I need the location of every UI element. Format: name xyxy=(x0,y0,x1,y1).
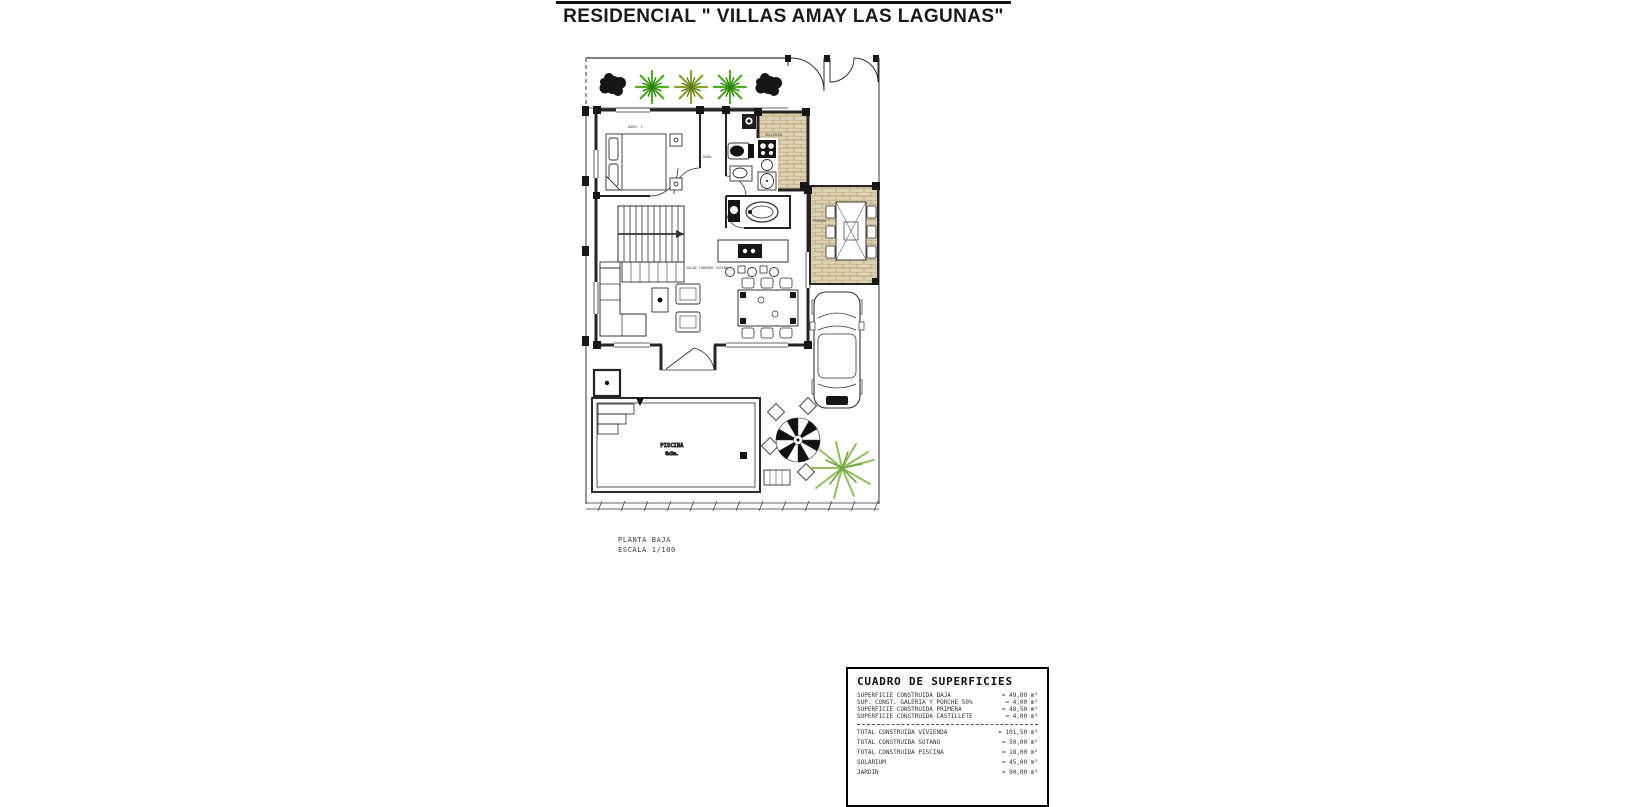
row-label: TOTAL CONSTRUIDA VIVIENDA xyxy=(857,728,947,738)
bedroom: DORM. 1 xyxy=(606,125,682,190)
dining-table xyxy=(738,278,798,338)
row-value: = 49,00 m² xyxy=(1002,692,1038,699)
tree-icon xyxy=(600,73,627,96)
bedroom-bed xyxy=(606,134,666,190)
areas-table-title: CUADRO DE SUPERFICIES xyxy=(857,675,1038,688)
table-row: TOTAL CONSTRUIDA VIVIENDA = 101,50 m² xyxy=(857,728,1038,738)
gate-post xyxy=(785,55,791,62)
pool-skimmer xyxy=(740,452,747,459)
window xyxy=(594,150,598,178)
stool xyxy=(770,268,779,277)
stove xyxy=(758,140,776,158)
row-label: SUP. CONST. GALERIA Y PORCHE 50% xyxy=(857,699,973,706)
nightstand xyxy=(670,178,682,190)
row-value: = 18,00 m² xyxy=(1002,748,1038,758)
row-label: JARDIN xyxy=(857,768,879,778)
plan-caption-scale: ESCALA 1/100 xyxy=(618,545,676,555)
pool-size-label: 6x3m. xyxy=(665,451,679,457)
row-label: TOTAL CONSTRUIDA SOTANO xyxy=(857,738,940,748)
gate-post xyxy=(824,55,830,62)
row-value: = 101,50 m² xyxy=(998,728,1038,738)
row-value: = 90,00 m² xyxy=(1002,768,1038,778)
dimension-line xyxy=(586,501,879,511)
table-row: SUPERFICIE CONSTRUIDA BAJA = 49,00 m² xyxy=(857,692,1038,699)
row-label: SUPERFICIE CONSTRUIDA PRIMERA xyxy=(857,706,962,713)
row-label: TOTAL CONSTRUIDA PISCINA xyxy=(857,748,944,758)
sheet-top-rule xyxy=(556,1,1011,4)
bathroom-label: BAÑO xyxy=(703,154,711,159)
parasol-table xyxy=(762,398,820,485)
row-value: = 50,00 m² xyxy=(1002,738,1038,748)
page-title: RESIDENCIAL " VILLAS AMAY LAS LAGUNAS" xyxy=(556,6,1011,28)
garden-chair xyxy=(800,398,817,415)
window xyxy=(614,343,650,347)
palm-tree-icon xyxy=(812,442,874,498)
row-label: SUPERFICIE CONSTRUIDA CASTILLETE xyxy=(857,713,973,720)
table-row: JARDIN = 90,00 m² xyxy=(857,768,1038,778)
palm-icon xyxy=(636,71,668,103)
kitchen-sink xyxy=(762,160,773,171)
stool xyxy=(726,268,735,277)
pedestrian-gate xyxy=(791,58,824,91)
stool xyxy=(748,268,757,277)
areas-table: CUADRO DE SUPERFICIES SUPERFICIE CONSTRU… xyxy=(846,667,1049,807)
table-row: TOTAL CONSTRUIDA SOTANO = 50,00 m² xyxy=(857,738,1038,748)
plan-caption: PLANTA BAJA ESCALA 1/100 xyxy=(618,535,676,555)
plan-caption-title: PLANTA BAJA xyxy=(618,535,676,545)
row-value: = 45,00 m² xyxy=(1002,758,1038,768)
car-mirror xyxy=(810,322,815,330)
armchair xyxy=(676,284,700,304)
areas-table-rows: SUPERFICIE CONSTRUIDA BAJA = 49,00 m² SU… xyxy=(857,692,1038,720)
window xyxy=(616,108,650,112)
porch-dining-table xyxy=(826,202,876,260)
window xyxy=(726,343,788,347)
porch-terrace: PORCHE xyxy=(810,186,878,284)
garden-trees xyxy=(600,71,783,103)
garden-chair xyxy=(798,464,815,481)
garden-chair xyxy=(768,404,785,421)
armchair xyxy=(676,312,700,332)
table-separator xyxy=(857,724,1038,725)
sofa-set xyxy=(600,262,700,336)
row-label: SUPERFICIE CONSTRUIDA BAJA xyxy=(857,692,951,699)
entrance-gates xyxy=(785,55,879,91)
table-row: SUPERFICIE CONSTRUIDA PRIMERA = 48,50 m² xyxy=(857,706,1038,713)
row-value: = 48,50 m² xyxy=(1002,706,1038,713)
entry-door xyxy=(661,345,715,370)
galeria-label: GALERIA xyxy=(766,132,783,137)
floor-plan: GALERIA PORCHE xyxy=(580,52,886,520)
bedroom-label: DORM. 1 xyxy=(628,125,643,129)
outdoor-shower xyxy=(594,370,620,396)
areas-table-totals: TOTAL CONSTRUIDA VIVIENDA = 101,50 m² TO… xyxy=(857,728,1038,778)
staircase xyxy=(618,206,684,282)
row-value: = 4,00 m² xyxy=(1005,699,1038,706)
palm-icon xyxy=(714,71,746,103)
car xyxy=(810,292,864,408)
aseo-fixtures xyxy=(728,200,778,222)
porch-label: PORCHE xyxy=(813,218,827,223)
table-row: SUP. CONST. GALERIA Y PORCHE 50% = 4,00 … xyxy=(857,699,1038,706)
row-value: = 4,00 m² xyxy=(1005,713,1038,720)
pool-label: PISCINA xyxy=(660,443,683,449)
car-mirror xyxy=(859,322,864,330)
garden-bench xyxy=(764,470,790,485)
kitchen-island xyxy=(718,240,788,277)
window xyxy=(594,282,598,314)
table-row: TOTAL CONSTRUIDA PISCINA = 18,00 m² xyxy=(857,748,1038,758)
table-row: SOLARIUM = 45,00 m² xyxy=(857,758,1038,768)
parasol-icon xyxy=(776,418,820,462)
swimming-pool: PISCINA 6x3m. xyxy=(592,398,760,492)
vehicle-gate xyxy=(830,58,878,82)
palm-icon xyxy=(675,71,707,103)
table-row: SUPERFICIE CONSTRUIDA CASTILLETE = 4,00 … xyxy=(857,713,1038,720)
tree-icon xyxy=(756,73,783,96)
nightstand xyxy=(670,134,682,146)
kitchen-appliances xyxy=(756,138,778,192)
living-room-label: SALON COMEDOR COCINA xyxy=(686,266,729,270)
row-label: SOLARIUM xyxy=(857,758,886,768)
bathroom-fixtures: BAÑO xyxy=(703,114,756,181)
